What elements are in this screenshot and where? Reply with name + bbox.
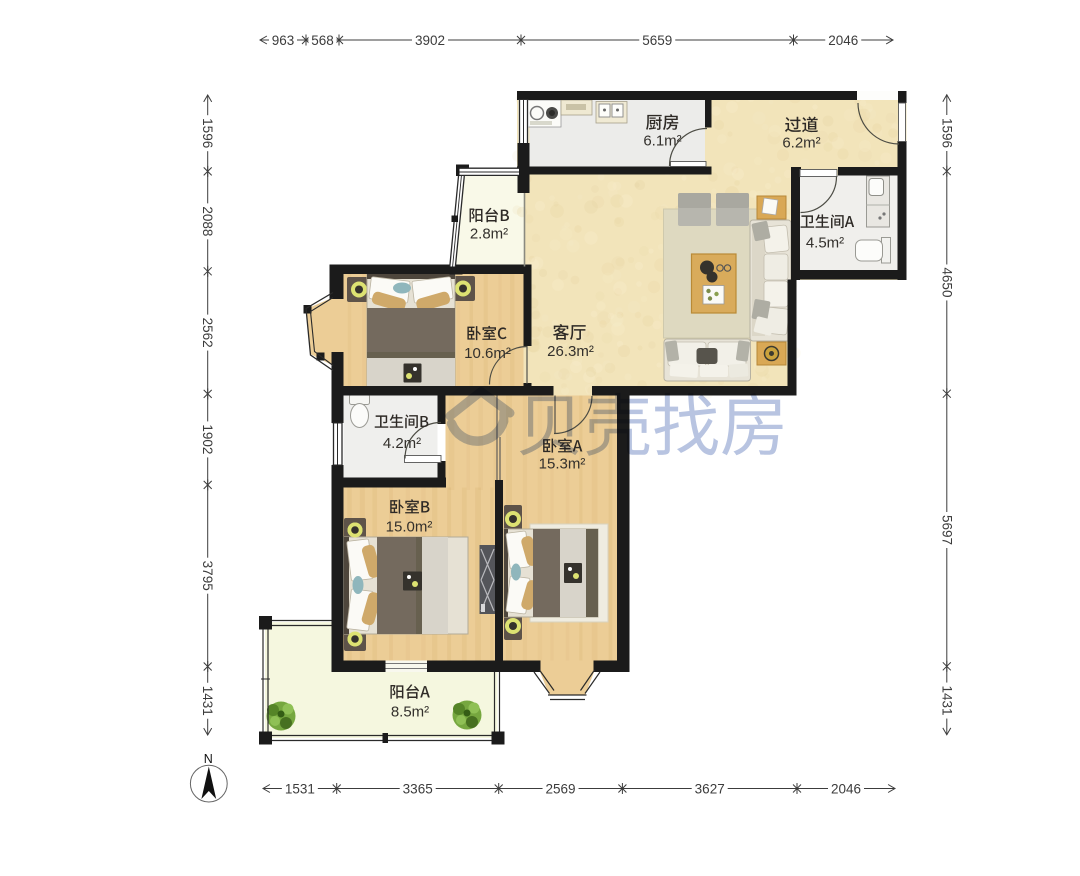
svg-text:4.2m²: 4.2m² [383, 435, 421, 452]
svg-text:6.1m²: 6.1m² [643, 133, 681, 150]
svg-text:2046: 2046 [831, 782, 861, 797]
svg-text:5659: 5659 [642, 33, 672, 48]
svg-text:1902: 1902 [200, 424, 215, 454]
svg-text:3795: 3795 [200, 561, 215, 591]
svg-text:2088: 2088 [200, 206, 215, 236]
svg-text:6.2m²: 6.2m² [782, 135, 820, 152]
svg-text:1431: 1431 [939, 686, 954, 716]
svg-text:568: 568 [311, 33, 334, 48]
svg-text:5697: 5697 [939, 515, 954, 545]
svg-text:15.3m²: 15.3m² [539, 456, 586, 473]
svg-text:N: N [204, 752, 213, 766]
svg-text:3365: 3365 [403, 782, 433, 797]
svg-text:1431: 1431 [200, 686, 215, 716]
svg-text:26.3m²: 26.3m² [547, 343, 594, 360]
svg-text:1596: 1596 [939, 118, 954, 148]
svg-text:1596: 1596 [200, 118, 215, 148]
svg-text:4.5m²: 4.5m² [806, 235, 844, 252]
svg-text:1531: 1531 [285, 782, 315, 797]
svg-text:2046: 2046 [828, 33, 858, 48]
svg-text:4650: 4650 [939, 267, 954, 297]
svg-text:15.0m²: 15.0m² [386, 519, 433, 536]
svg-text:2569: 2569 [546, 782, 576, 797]
svg-text:3902: 3902 [415, 33, 445, 48]
svg-text:2562: 2562 [200, 318, 215, 348]
svg-text:10.6m²: 10.6m² [464, 345, 511, 362]
svg-text:2.8m²: 2.8m² [470, 226, 508, 243]
svg-text:963: 963 [272, 33, 295, 48]
svg-text:3627: 3627 [695, 782, 725, 797]
svg-text:8.5m²: 8.5m² [391, 704, 429, 721]
